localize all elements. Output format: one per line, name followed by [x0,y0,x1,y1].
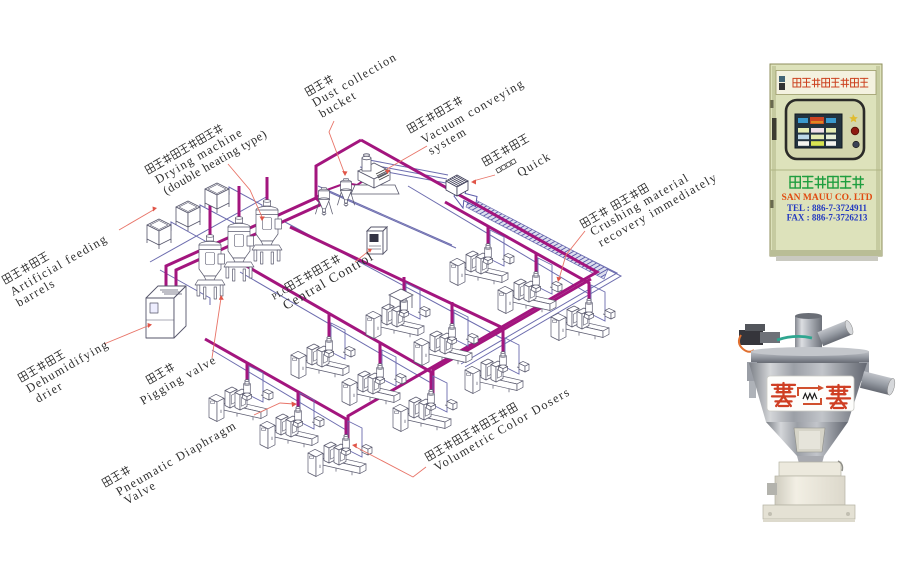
svg-text:SAN MAUU CO. LTD: SAN MAUU CO. LTD [782,193,873,203]
svg-text:FAX : 886-7-3726213: FAX : 886-7-3726213 [787,213,868,223]
svg-text:TEL : 886-7-3724911: TEL : 886-7-3724911 [787,203,868,213]
